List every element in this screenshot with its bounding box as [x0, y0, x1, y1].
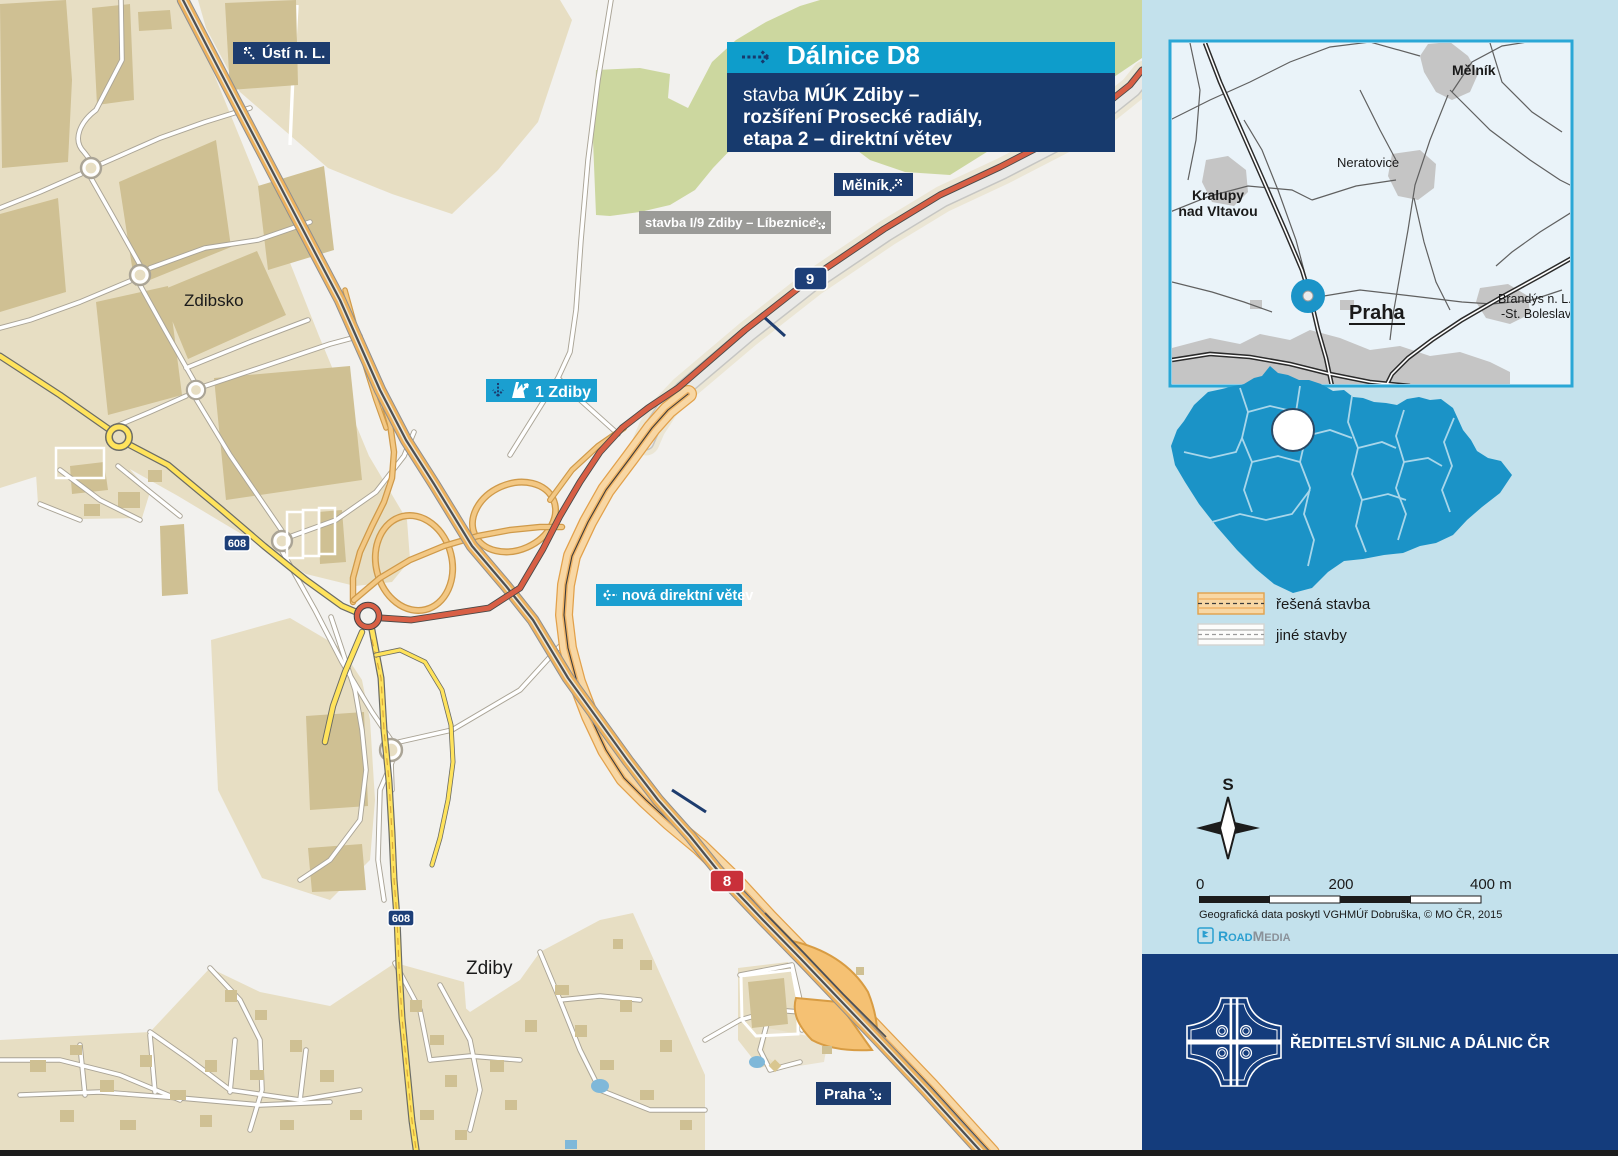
svg-text:608: 608: [228, 538, 246, 550]
svg-text:řešená stavba: řešená stavba: [1276, 596, 1371, 613]
svg-text:Praha: Praha: [824, 1086, 866, 1103]
svg-text:Kralupy: Kralupy: [1192, 187, 1244, 203]
svg-text:Praha: Praha: [1349, 302, 1405, 324]
svg-text:Mělník: Mělník: [1452, 62, 1496, 78]
svg-text:ŘEDITELSTVÍ SILNIC A DÁLNIC ČR: ŘEDITELSTVÍ SILNIC A DÁLNIC ČR: [1290, 1034, 1550, 1052]
svg-text:1 Zdiby: 1 Zdiby: [535, 384, 591, 401]
svg-text:0: 0: [1196, 876, 1204, 893]
svg-text:Zdibsko: Zdibsko: [184, 291, 244, 310]
svg-text:Neratovice: Neratovice: [1337, 155, 1399, 170]
svg-text:Geografická data poskytl VGHMÚ: Geografická data poskytl VGHMÚř Dobruška…: [1199, 908, 1502, 921]
svg-text:9: 9: [806, 271, 814, 288]
svg-text:200: 200: [1328, 876, 1353, 893]
svg-text:jiné stavby: jiné stavby: [1275, 627, 1347, 644]
svg-text:rozšíření Prosecké radiály,: rozšíření Prosecké radiály,: [743, 107, 982, 128]
svg-text:Dálnice D8: Dálnice D8: [787, 40, 920, 70]
svg-text:Mělník: Mělník: [842, 177, 889, 194]
svg-text:nová direktní větev: nová direktní větev: [622, 588, 753, 604]
svg-text:S: S: [1222, 775, 1233, 794]
svg-text:Zdiby: Zdiby: [466, 958, 513, 979]
svg-text:etapa 2 – direktní větev: etapa 2 – direktní větev: [743, 129, 953, 150]
svg-text:Brandýs n. L.-: Brandýs n. L.-: [1498, 292, 1576, 306]
svg-text:608: 608: [392, 913, 410, 925]
svg-text:stavba I/9 Zdiby – Líbeznice: stavba I/9 Zdiby – Líbeznice: [645, 215, 816, 230]
svg-text:-St. Boleslav: -St. Boleslav: [1501, 307, 1572, 321]
svg-text:stavba MÚK Zdiby –: stavba MÚK Zdiby –: [743, 84, 919, 106]
svg-text:Ústí n. L.: Ústí n. L.: [262, 44, 325, 62]
svg-text:nad Vltavou: nad Vltavou: [1178, 203, 1257, 219]
svg-text:8: 8: [723, 873, 731, 890]
svg-text:400 m: 400 m: [1470, 876, 1512, 893]
